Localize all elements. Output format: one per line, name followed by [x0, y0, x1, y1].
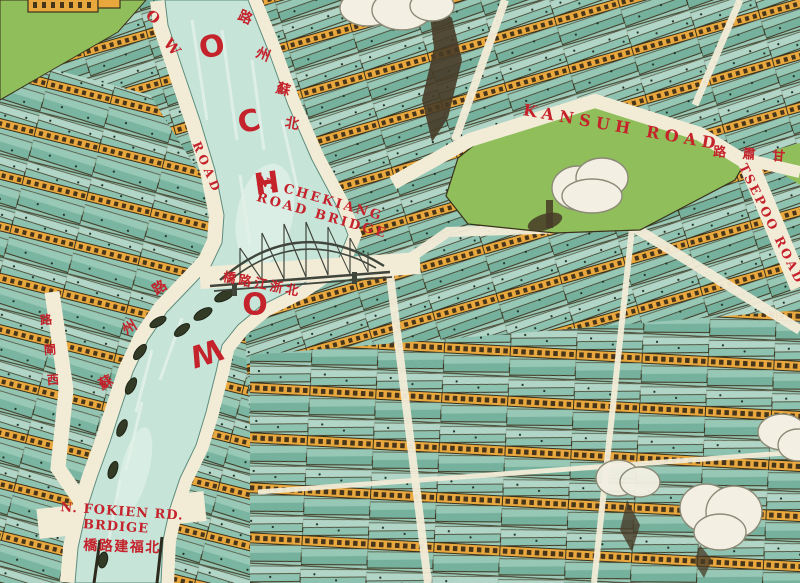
fokien-bridge-zh: 橋路建福北	[83, 537, 161, 557]
east-bank-zh-4: 北	[284, 115, 301, 133]
pictorial-map: O C H O W O W ROAD 路 州 蘇 北 路 州 蘇 路 閘 西 N…	[0, 0, 800, 583]
west-inner-zh-3: 西	[47, 373, 60, 388]
west-inner-zh-2: 閘	[44, 343, 57, 358]
map-canvas: O C H O W O W ROAD 路 州 蘇 北 路 州 蘇 路 閘 西 N…	[0, 0, 800, 583]
